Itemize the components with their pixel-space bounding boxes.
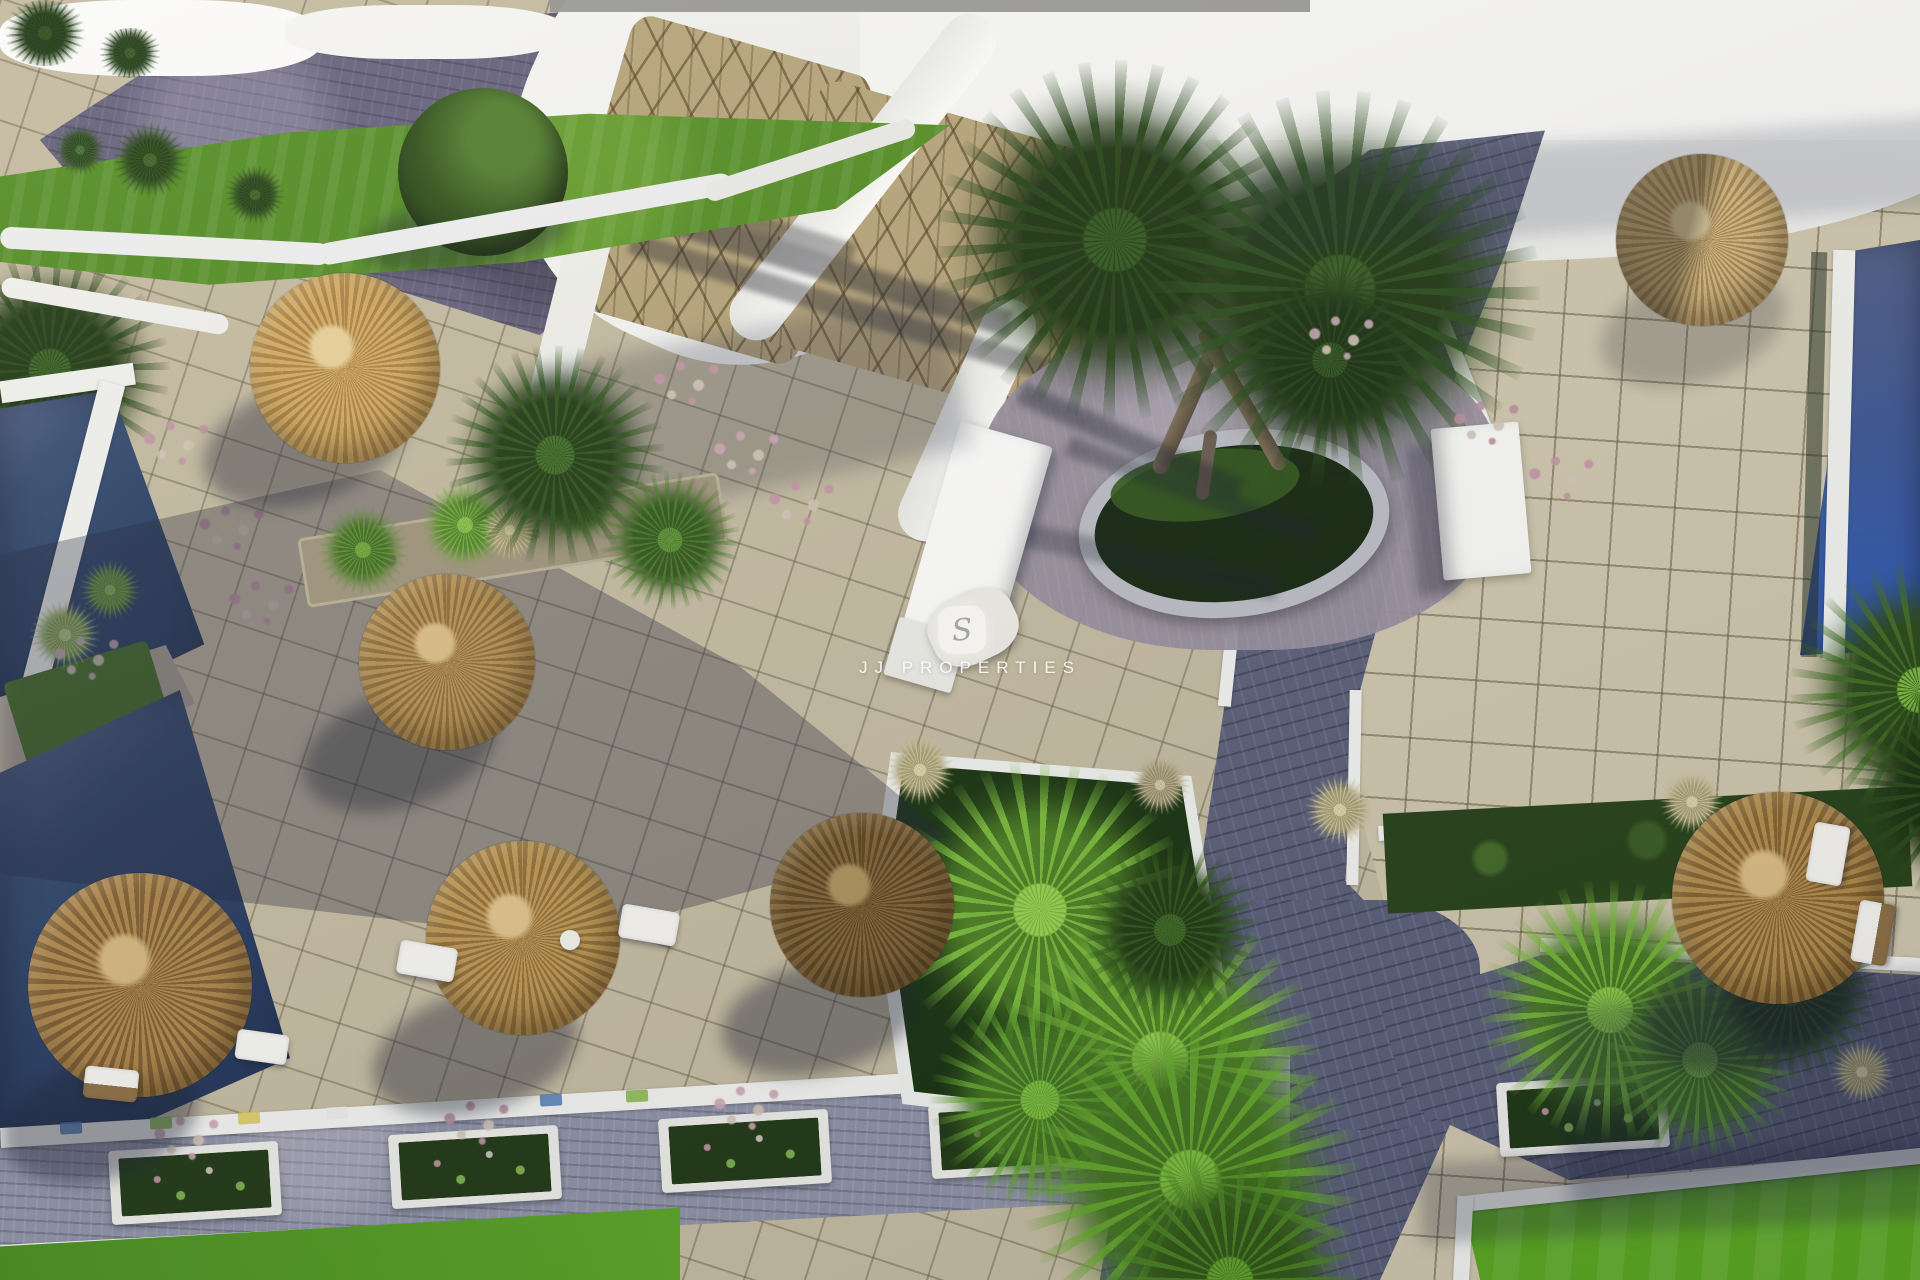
parasol xyxy=(770,813,954,997)
parasol xyxy=(28,873,252,1097)
flower-spray xyxy=(1515,445,1605,509)
watermark-title: JJ PROPERTIES xyxy=(840,658,1100,678)
parasol xyxy=(426,841,620,1035)
walkway-marker xyxy=(626,1089,649,1102)
mid-palm-crown xyxy=(600,470,740,610)
flower-spray xyxy=(640,350,730,414)
parasol xyxy=(359,574,535,750)
walkway-marker xyxy=(540,1093,563,1106)
roof-edge-strip xyxy=(550,0,1310,12)
walkway-marker xyxy=(238,1111,261,1124)
lawn-tree xyxy=(225,165,285,225)
palm-dark-island xyxy=(1080,840,1260,1020)
tree-canopy xyxy=(95,28,165,78)
bed-shrub xyxy=(318,505,408,595)
flower-spray xyxy=(700,1075,790,1139)
jj-properties-logo: S xyxy=(936,604,987,655)
sun-lounger xyxy=(82,1065,139,1102)
resort-aerial-render: S JJ PROPERTIES xyxy=(0,0,1920,1280)
parasol xyxy=(250,273,440,463)
tree-canopy xyxy=(0,0,90,66)
lawn-tree xyxy=(112,122,188,198)
walkway-marker xyxy=(326,1106,349,1119)
parasol xyxy=(1672,792,1884,1004)
parasol-shading xyxy=(1616,154,1788,326)
lawn-tree xyxy=(54,124,106,176)
white-structure-topleft xyxy=(285,5,565,59)
side-table xyxy=(560,930,580,950)
logo-letter: S xyxy=(951,612,974,648)
pampas-tuft xyxy=(1305,775,1375,845)
flower-spray xyxy=(1295,305,1385,369)
flower-spray xyxy=(755,470,845,534)
pampas-tuft xyxy=(1130,755,1190,815)
